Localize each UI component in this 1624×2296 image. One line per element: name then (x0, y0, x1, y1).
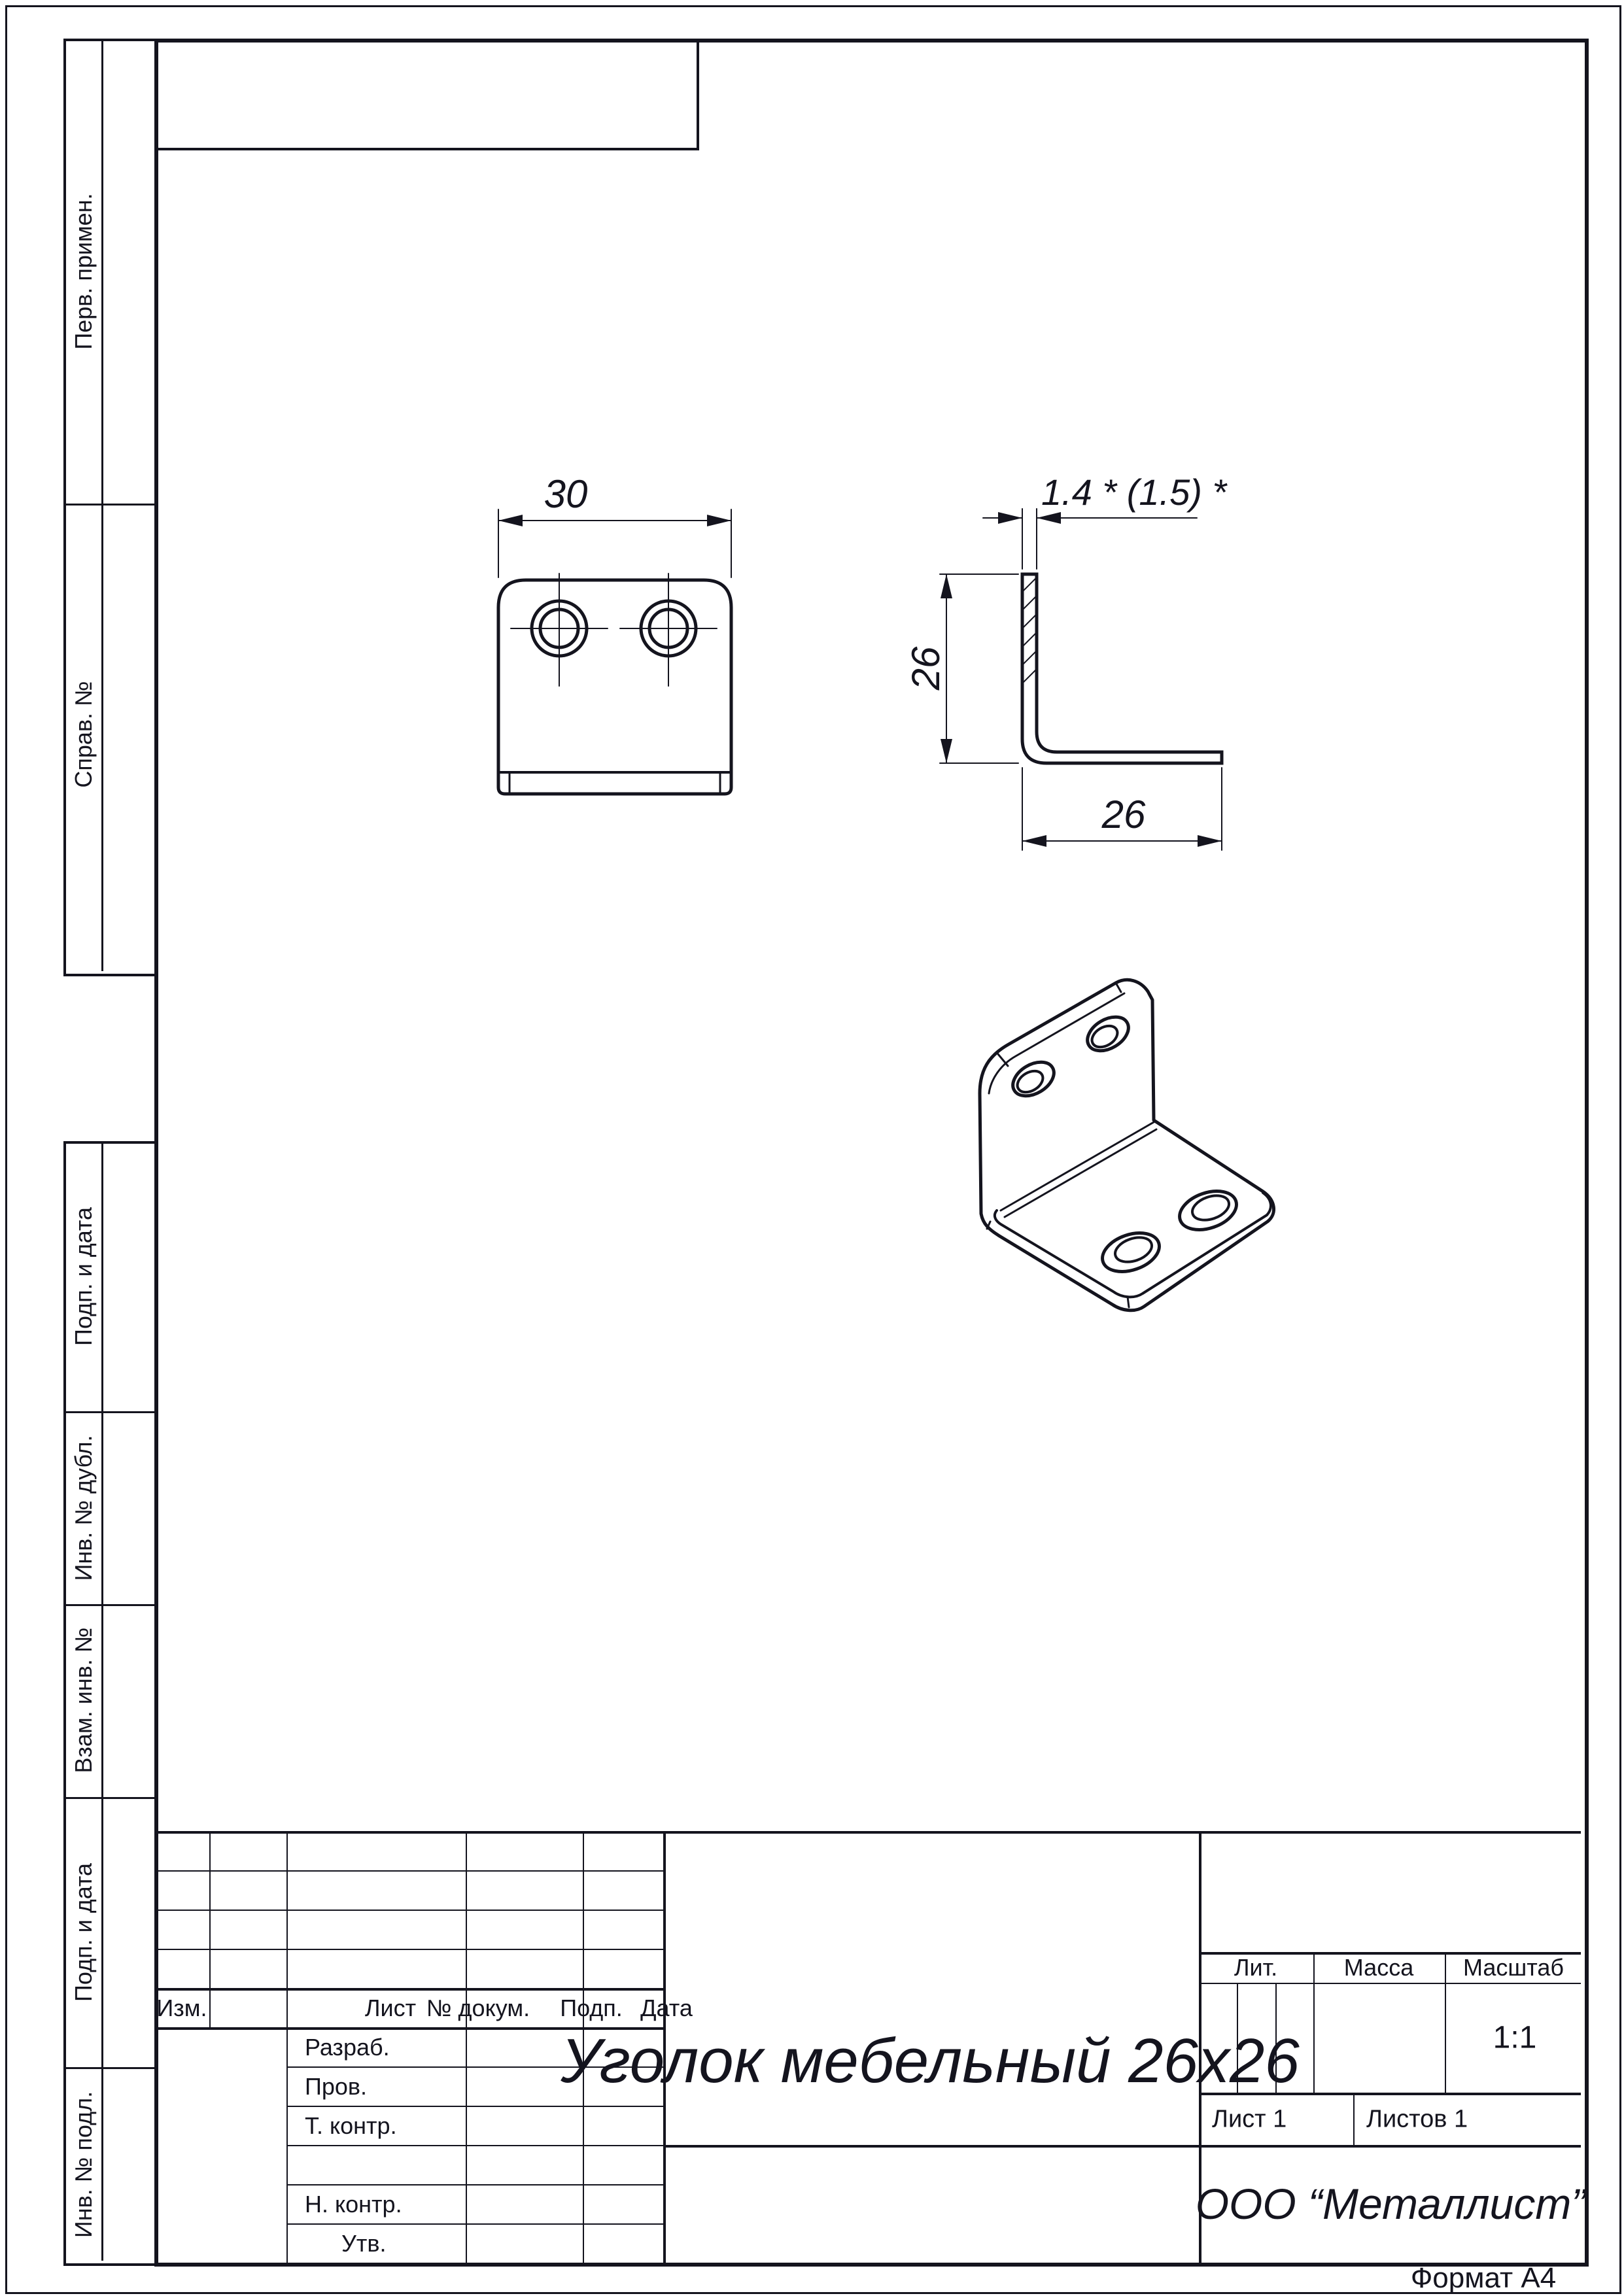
front-view: 30 (498, 472, 731, 794)
isometric-view (980, 980, 1274, 1310)
side-view: 1.4 * (1.5) * 26 26 (904, 471, 1228, 850)
side-height-dim-text: 26 (904, 646, 948, 691)
side-depth-dim-text: 26 (1101, 793, 1146, 836)
side-thickness-dim-text: 1.4 * (1.5) * (1041, 471, 1228, 513)
drawing-sheet: Перв. примен. Справ. № Подп. и дата Инв.… (0, 0, 1624, 2296)
front-width-dim-text: 30 (544, 472, 588, 516)
views-canvas: 30 1.4 * (1.5) * 26 (0, 0, 1624, 2296)
